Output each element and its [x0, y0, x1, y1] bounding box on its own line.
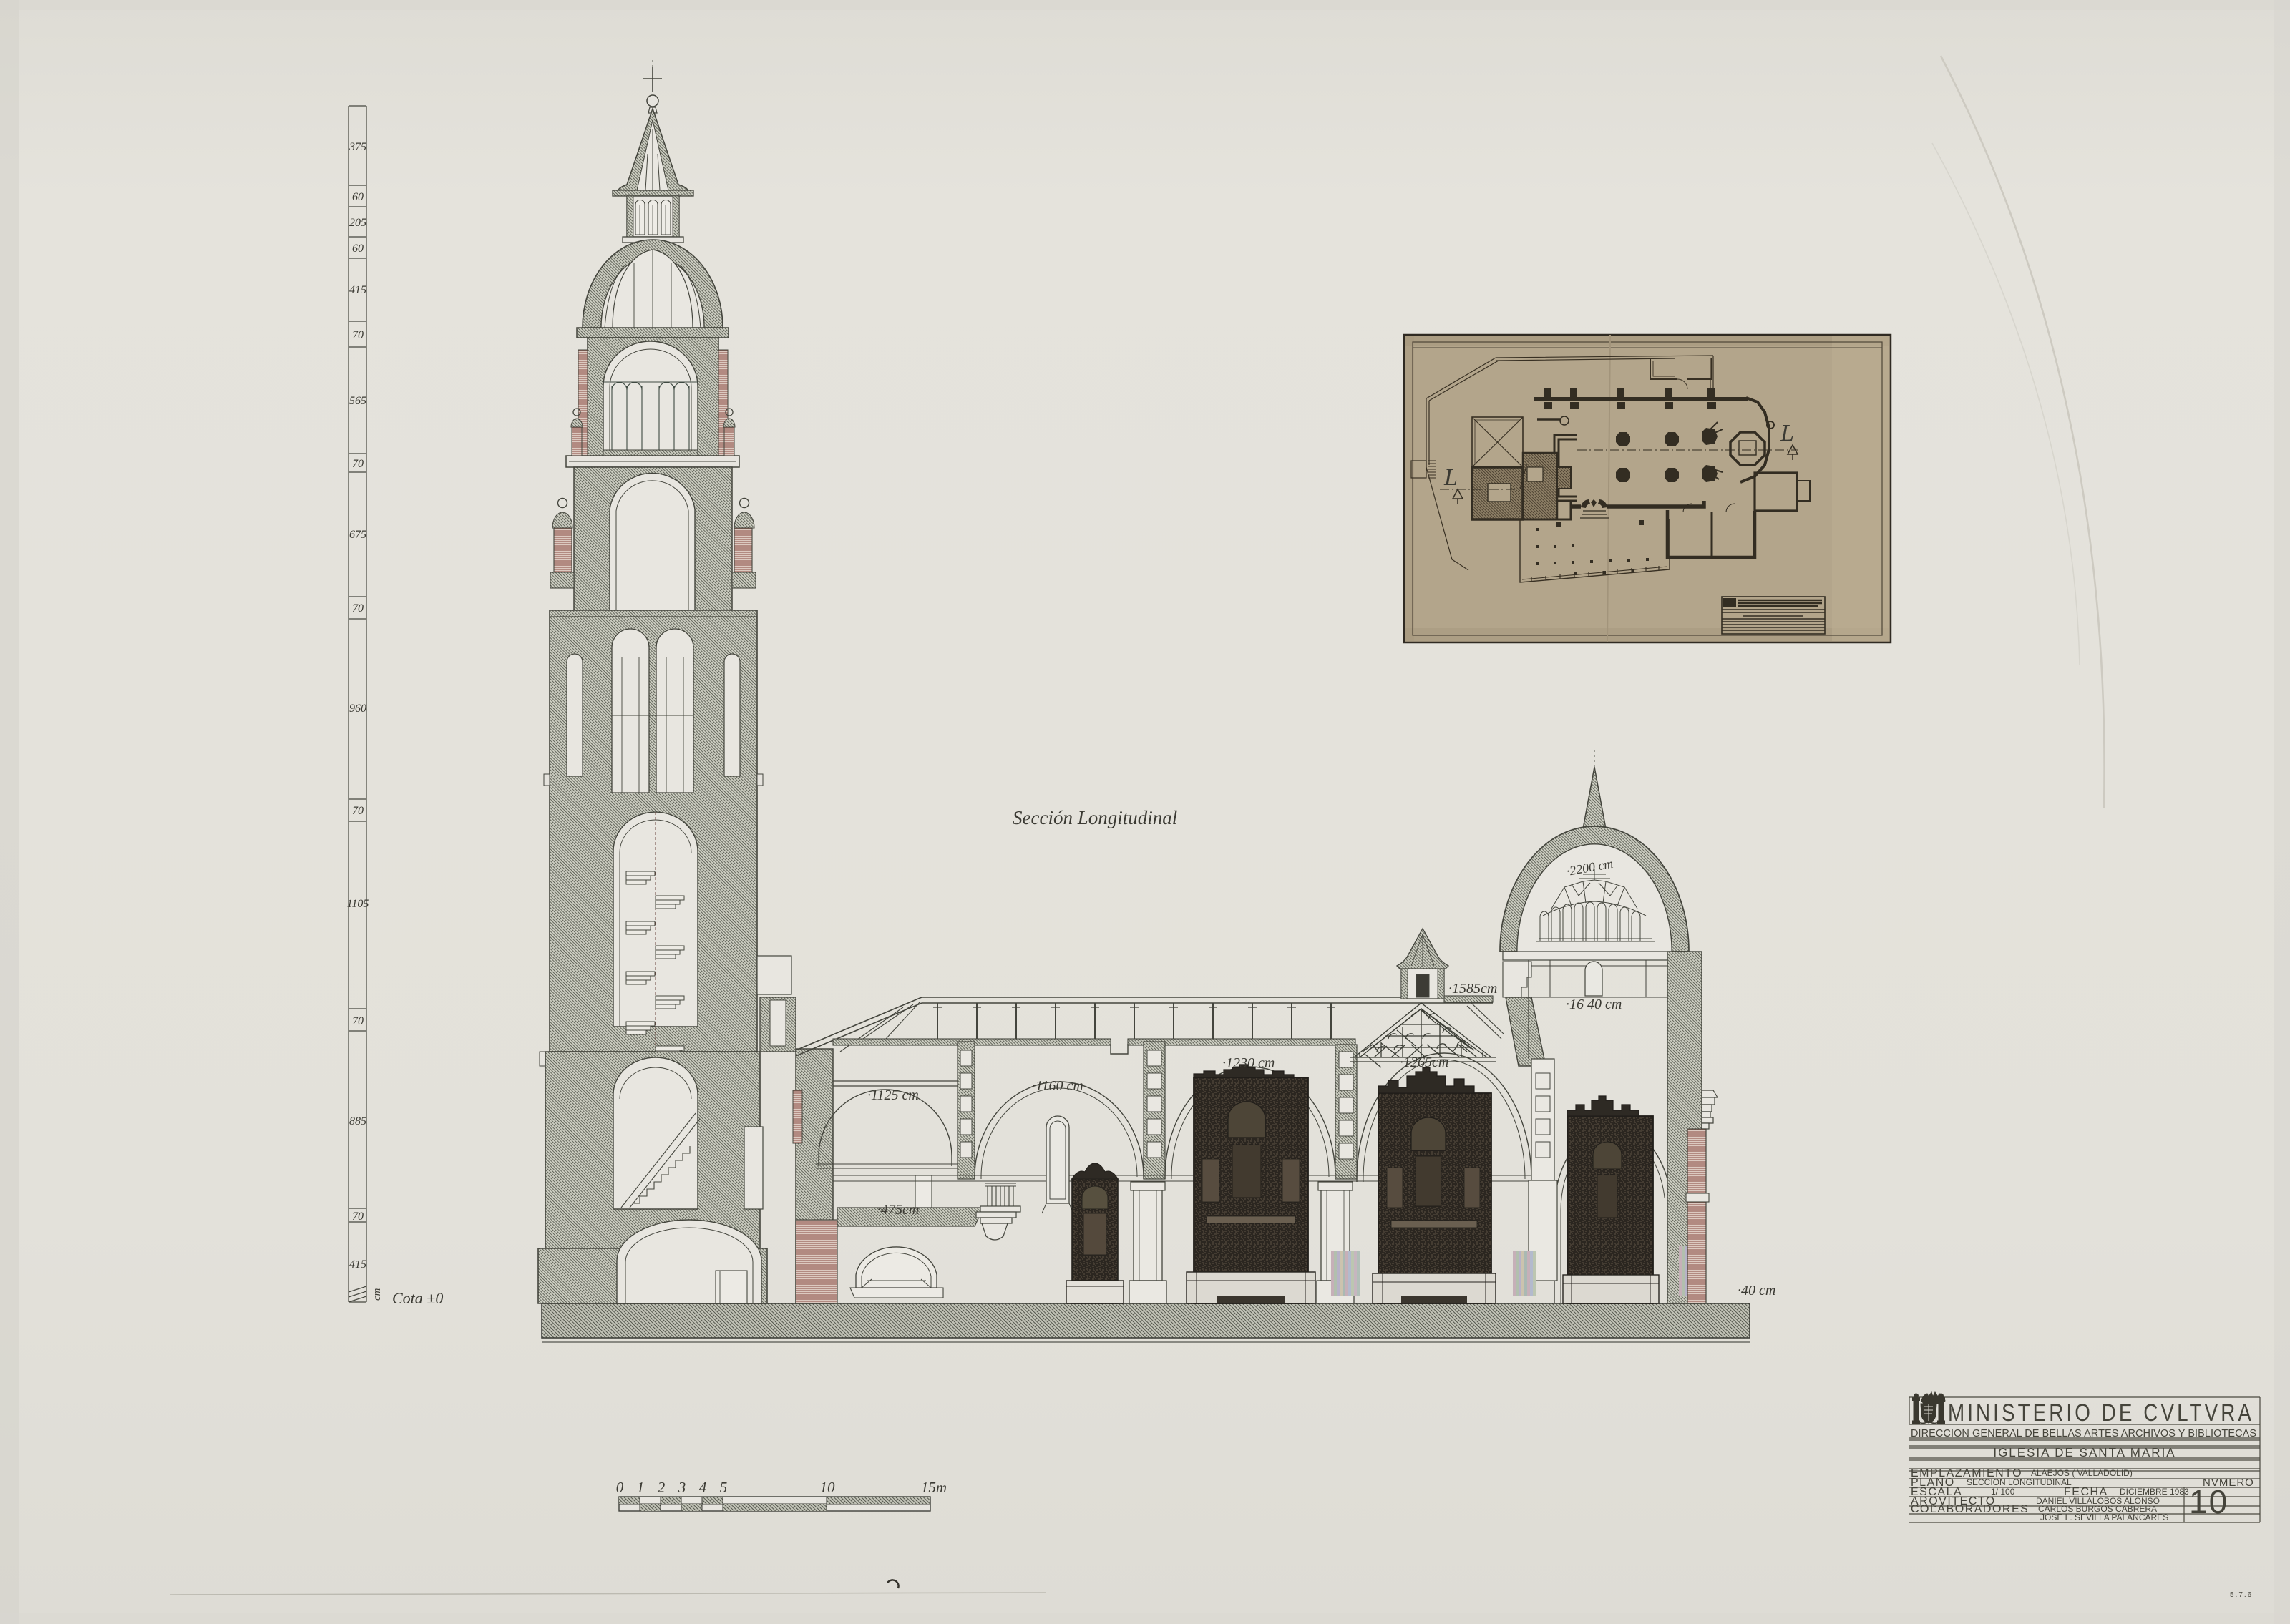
svg-text:Sección Longitudinal: Sección Longitudinal	[1013, 807, 1177, 828]
svg-text:SECCION LONGITUDINAL: SECCION LONGITUDINAL	[1967, 1477, 2072, 1487]
svg-text:1: 1	[637, 1479, 645, 1496]
svg-text:DICIEMBRE 1983: DICIEMBRE 1983	[2120, 1487, 2189, 1497]
svg-text:70: 70	[352, 329, 364, 341]
svg-text:2: 2	[658, 1479, 666, 1496]
svg-text:·16 40 cm: ·16 40 cm	[1566, 997, 1622, 1012]
svg-text:·1125 cm: ·1125 cm	[867, 1087, 919, 1103]
svg-text:DIRECCION GENERAL DE BELLAS AR: DIRECCION GENERAL DE BELLAS ARTES ARCHIV…	[1911, 1428, 2257, 1439]
svg-text:Cota ±0: Cota ±0	[392, 1289, 443, 1307]
svg-text:0: 0	[616, 1479, 624, 1496]
svg-text:70: 70	[352, 458, 364, 470]
svg-text:60: 60	[352, 243, 364, 255]
svg-text:MINISTERIO DE CVLTVRA: MINISTERIO DE CVLTVRA	[1948, 1399, 2254, 1427]
svg-text:JOSE L. SEVILLA PALANCARES: JOSE L. SEVILLA PALANCARES	[2040, 1512, 2168, 1522]
svg-text:415: 415	[349, 1258, 366, 1271]
svg-text:IGLESIA DE SANTA MARIA: IGLESIA DE SANTA MARIA	[1993, 1446, 2175, 1459]
svg-text:COLABORADORES: COLABORADORES	[1911, 1503, 2029, 1515]
svg-text:60: 60	[352, 191, 364, 203]
svg-text:415: 415	[349, 284, 366, 296]
svg-text:205: 205	[349, 217, 366, 229]
svg-text:3: 3	[678, 1479, 686, 1496]
svg-text:5: 5	[720, 1479, 728, 1496]
svg-text:70: 70	[352, 805, 364, 817]
svg-text:1105: 1105	[347, 898, 369, 910]
svg-text:675: 675	[349, 529, 366, 541]
svg-text:565: 565	[349, 395, 366, 407]
svg-text:960: 960	[349, 703, 366, 715]
svg-text:·1585cm: ·1585cm	[1448, 981, 1497, 997]
svg-text:ALAEJOS ( VALLADOLID): ALAEJOS ( VALLADOLID)	[2031, 1468, 2133, 1478]
svg-text:·40 cm: ·40 cm	[1738, 1283, 1775, 1298]
svg-text:70: 70	[352, 602, 364, 615]
svg-text:cm: cm	[371, 1288, 383, 1301]
svg-text:375: 375	[349, 141, 366, 153]
svg-text:70: 70	[352, 1210, 364, 1223]
svg-text:885: 885	[349, 1115, 366, 1127]
svg-text:·1230 cm: ·1230 cm	[1222, 1055, 1275, 1071]
svg-text:70: 70	[352, 1015, 364, 1027]
svg-text:L: L	[1780, 420, 1794, 446]
svg-text:10: 10	[2189, 1483, 2228, 1520]
svg-text:5.7.6: 5.7.6	[2230, 1591, 2253, 1599]
svg-text:10: 10	[820, 1479, 836, 1496]
svg-text:·475cm: ·475cm	[877, 1202, 919, 1218]
svg-text:15m: 15m	[921, 1479, 947, 1496]
svg-text:·1160 cm: ·1160 cm	[1032, 1078, 1083, 1094]
svg-text:4: 4	[699, 1479, 707, 1496]
svg-text:L: L	[1443, 464, 1458, 491]
